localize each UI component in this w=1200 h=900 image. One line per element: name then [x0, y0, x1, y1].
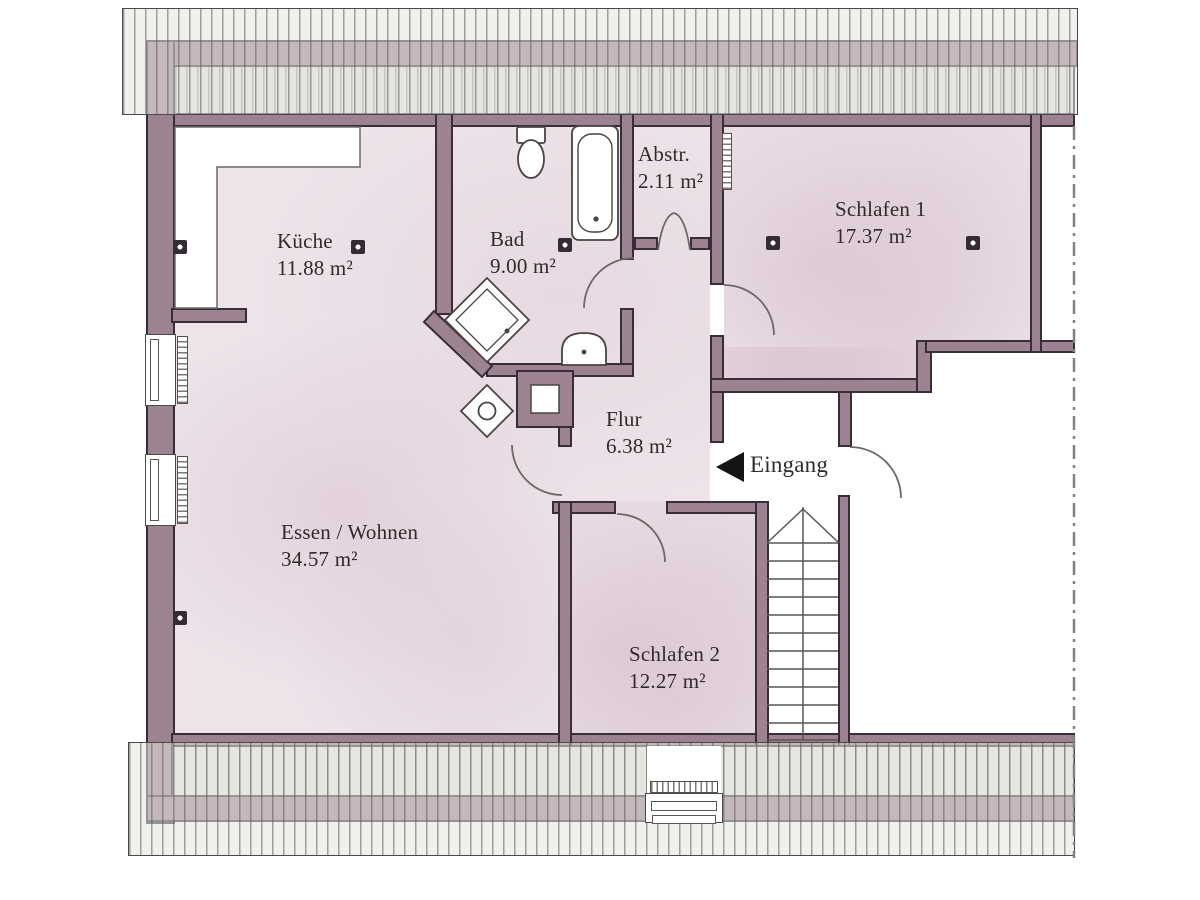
floor-plan: Küche 11.88 m² Bad 9.00 m² Abstr. 2.11 m… [0, 0, 1200, 900]
wall-schlafen1-right [1030, 113, 1042, 353]
wall-schlafen2-top-right [666, 501, 769, 514]
room-label-bad: Bad 9.00 m² [490, 226, 556, 280]
room-name: Bad [490, 226, 556, 253]
smoke-detector-icon [173, 240, 187, 254]
room-area: 34.57 m² [281, 546, 418, 573]
wall-bad-abstr-upper [620, 113, 634, 260]
room-label-essen-wohnen: Essen / Wohnen 34.57 m² [281, 519, 418, 573]
roof-overhang-top [122, 8, 1078, 115]
roof-overhang-bottom [128, 742, 1075, 856]
wall-bad-abstr-lower [620, 308, 634, 365]
smoke-detector-icon [966, 236, 980, 250]
room-name: Essen / Wohnen [281, 519, 418, 546]
room-area: 17.37 m² [835, 223, 926, 250]
wall-bad-bottom [486, 363, 634, 377]
room-name: Küche [277, 228, 353, 255]
room-area: 11.88 m² [277, 255, 353, 282]
room-label-flur: Flur 6.38 m² [606, 406, 672, 460]
radiator-schlafen2 [650, 781, 718, 793]
room-name: Flur [606, 406, 672, 433]
wall-outer-left [146, 40, 175, 824]
smoke-detector-icon [173, 611, 187, 625]
smoke-detector-icon [766, 236, 780, 250]
wall-essen-flur [558, 413, 572, 447]
window-left-2-frame [150, 459, 159, 521]
entrance-label: Eingang [750, 451, 828, 478]
room-label-kueche: Küche 11.88 m² [277, 228, 353, 282]
room-name: Schlafen 2 [629, 641, 720, 668]
wall-schlafen1-bottom-left [710, 378, 932, 393]
entrance-zone [716, 393, 1075, 505]
wall-abstr-bottom-left [634, 237, 658, 250]
room-area: 2.11 m² [638, 168, 703, 195]
staircase [767, 507, 839, 740]
room-area: 6.38 m² [606, 433, 672, 460]
radiator-left-1 [177, 336, 188, 404]
radiator-left-2 [177, 456, 188, 524]
wall-kueche-bad [435, 113, 453, 315]
window-left-1-frame [150, 339, 159, 401]
floor-schlafen1-lower [724, 347, 920, 380]
entrance-zone-upper [925, 351, 1075, 395]
smoke-detector-icon [558, 238, 572, 252]
room-area: 12.27 m² [629, 668, 720, 695]
window-bottom-frame [651, 801, 717, 811]
room-label-schlafen2: Schlafen 2 12.27 m² [629, 641, 720, 695]
floor-schlafen2 [558, 501, 769, 737]
radiator-schlafen1 [722, 133, 732, 190]
room-name: Abstr. [638, 141, 703, 168]
wall-entry-jog [838, 388, 852, 447]
room-area: 9.00 m² [490, 253, 556, 280]
room-label-schlafen1: Schlafen 1 17.37 m² [835, 196, 926, 250]
room-label-abstellraum: Abstr. 2.11 m² [638, 141, 703, 195]
entrance-text: Eingang [750, 452, 828, 477]
window-bottom-sill [652, 815, 716, 824]
wall-schlafen1-bottom-right [925, 340, 1075, 353]
wall-kueche-stub [171, 308, 247, 323]
room-name: Schlafen 1 [835, 196, 926, 223]
wall-abstr-bottom-right [690, 237, 710, 250]
smoke-detector-icon [351, 240, 365, 254]
